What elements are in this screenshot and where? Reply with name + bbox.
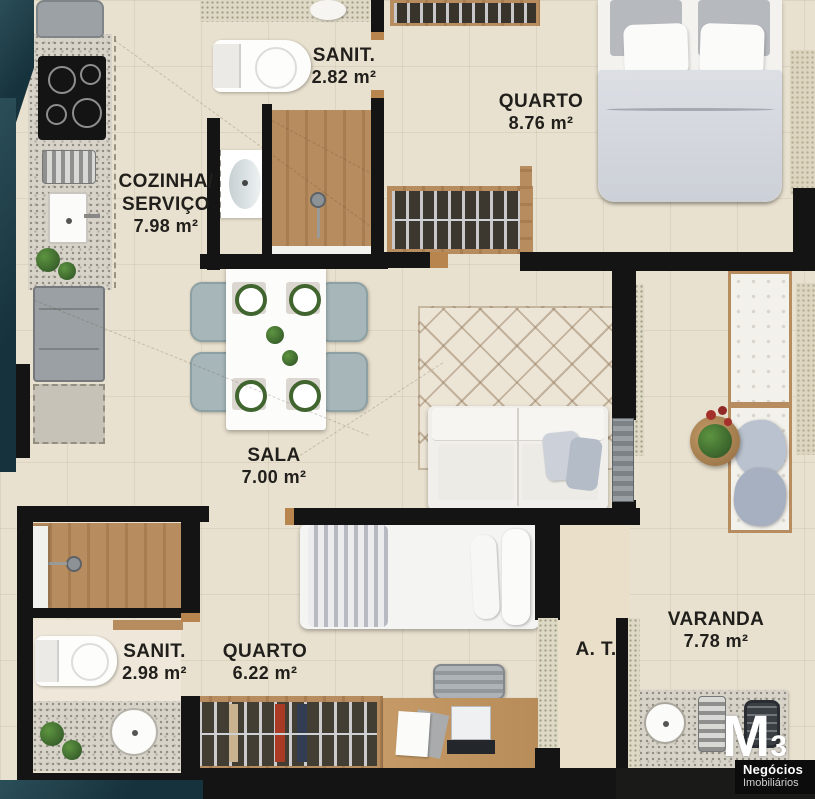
shower-stem: [317, 208, 320, 238]
room-area: 7.00 m²: [213, 467, 335, 489]
wardrobe: [390, 0, 540, 26]
logo-line2: Imobiliários: [743, 777, 809, 790]
open-door-leaf: [113, 620, 183, 630]
striped-blanket: [308, 525, 388, 627]
door-jamb: [181, 613, 200, 622]
wardrobe: [193, 696, 383, 772]
room-label-sanit-2: SANIT. 2.98 m²: [97, 640, 212, 685]
logo-m: M: [722, 704, 770, 769]
sofa-divider: [517, 408, 519, 506]
room-area: 7.98 m²: [100, 216, 232, 238]
base-cabinet: [33, 384, 105, 444]
burner: [80, 64, 101, 85]
door-jamb: [430, 252, 448, 268]
sofa-seat: [438, 444, 514, 500]
burner: [48, 66, 76, 94]
duvet: [598, 70, 782, 202]
cooktop: [38, 56, 106, 140]
room-label-quarto-1: QUARTO 8.76 m²: [478, 90, 604, 135]
room-area: 6.22 m²: [202, 663, 328, 685]
washing-machine: [33, 286, 105, 382]
room-name: SANIT.: [97, 640, 212, 663]
single-bed: [300, 521, 547, 631]
desk-chair: [433, 664, 505, 700]
wall: [17, 506, 33, 783]
bench-seat: [728, 271, 792, 405]
wall: [793, 188, 815, 266]
fridge: [36, 0, 104, 38]
toilet-tank: [213, 44, 241, 88]
printer-base: [447, 740, 495, 754]
sofa: [428, 406, 608, 510]
burner: [72, 98, 102, 128]
shower-door: [33, 526, 48, 608]
burner: [46, 104, 67, 125]
room-name: A. T.: [562, 638, 630, 661]
room-name: VARANDA: [650, 608, 782, 631]
room-label-at: A. T.: [562, 638, 630, 661]
wall: [17, 608, 200, 618]
ac-unit: [612, 418, 634, 502]
drain: [663, 721, 669, 727]
shower-drain: [310, 192, 326, 208]
table-plant: [282, 350, 298, 366]
hanging-clothes: [394, 3, 536, 23]
room-label-sala: SALA 7.00 m²: [213, 444, 335, 489]
plate: [235, 380, 267, 412]
wall: [520, 252, 815, 271]
closet-rail: [199, 733, 377, 735]
wall: [612, 270, 636, 420]
logo-3: 3: [770, 730, 787, 763]
sofa-pillow: [565, 436, 603, 492]
plant: [40, 722, 64, 746]
duvet-fold: [606, 108, 774, 111]
round-sink: [644, 702, 686, 744]
stool: [310, 0, 346, 20]
wall: [293, 508, 640, 525]
plate: [289, 284, 321, 316]
room-area: 8.76 m²: [478, 113, 604, 135]
wall: [262, 104, 272, 260]
paper-sheet: [396, 711, 431, 757]
room-name: QUARTO: [202, 640, 328, 663]
red-flower: [718, 406, 727, 415]
red-flower: [706, 410, 716, 420]
round-sink: [110, 708, 158, 756]
outside-area: [0, 98, 16, 472]
washer-line: [39, 348, 99, 350]
shower-floor: [33, 523, 181, 613]
potted-plant: [698, 424, 732, 458]
double-bed: [598, 0, 782, 202]
room-area: 7.78 m²: [650, 631, 782, 653]
pillow: [470, 534, 500, 619]
table-plant: [266, 326, 284, 344]
room-name: SERVIÇO: [100, 193, 232, 216]
faucet: [242, 180, 248, 186]
cabinet-projection-line: [114, 36, 116, 288]
room-name: SANIT.: [288, 44, 400, 67]
plant: [62, 740, 82, 760]
door-jamb: [371, 32, 384, 40]
pillow: [623, 23, 689, 77]
closet-rail: [392, 219, 528, 221]
bedroom-rug: [790, 50, 815, 195]
desk: [383, 698, 541, 770]
wardrobe: [387, 186, 533, 254]
room-label-quarto-2: QUARTO 6.22 m²: [202, 640, 328, 685]
shower-head: [66, 556, 82, 572]
room-area: 2.98 m²: [97, 663, 212, 685]
room-area: 2.82 m²: [288, 67, 400, 89]
room-name: SALA: [213, 444, 335, 467]
room-name: QUARTO: [478, 90, 604, 113]
pillow: [699, 23, 765, 77]
wall: [371, 98, 384, 256]
shower-floor: [270, 110, 371, 246]
floor-plan: SANIT. 2.82 m² QUARTO 8.76 m² COZINHA/ S…: [0, 0, 815, 799]
wall: [535, 508, 560, 620]
plate: [235, 284, 267, 316]
dish-rack: [42, 150, 96, 184]
dining-table: [226, 266, 326, 430]
varanda-mat: [796, 283, 815, 455]
duct-shaft: [538, 618, 558, 750]
brand-logo-mark: M3: [722, 708, 787, 766]
drain: [132, 730, 138, 736]
printer: [451, 706, 491, 740]
room-label-sanit-1: SANIT. 2.82 m²: [288, 44, 400, 89]
room-label-varanda: VARANDA 7.78 m²: [650, 608, 782, 653]
wall: [193, 768, 645, 799]
plant: [58, 262, 76, 280]
wall: [181, 506, 200, 613]
room-name: COZINHA/: [100, 170, 232, 193]
washer-line: [39, 308, 99, 310]
plant: [36, 248, 60, 272]
outside-area: [0, 780, 203, 799]
room-label-cozinha: COZINHA/ SERVIÇO 7.98 m²: [100, 170, 232, 238]
door-jamb: [285, 508, 294, 525]
red-flower: [724, 418, 732, 426]
pillow: [502, 529, 530, 625]
toilet-tank: [35, 640, 59, 682]
plate: [289, 380, 321, 412]
wall: [200, 254, 388, 269]
door-jamb: [371, 90, 384, 98]
drain: [66, 218, 72, 224]
faucet: [84, 214, 100, 218]
wall: [371, 0, 384, 32]
kitchen-sink: [48, 192, 88, 244]
open-door-leaf: [520, 166, 532, 254]
